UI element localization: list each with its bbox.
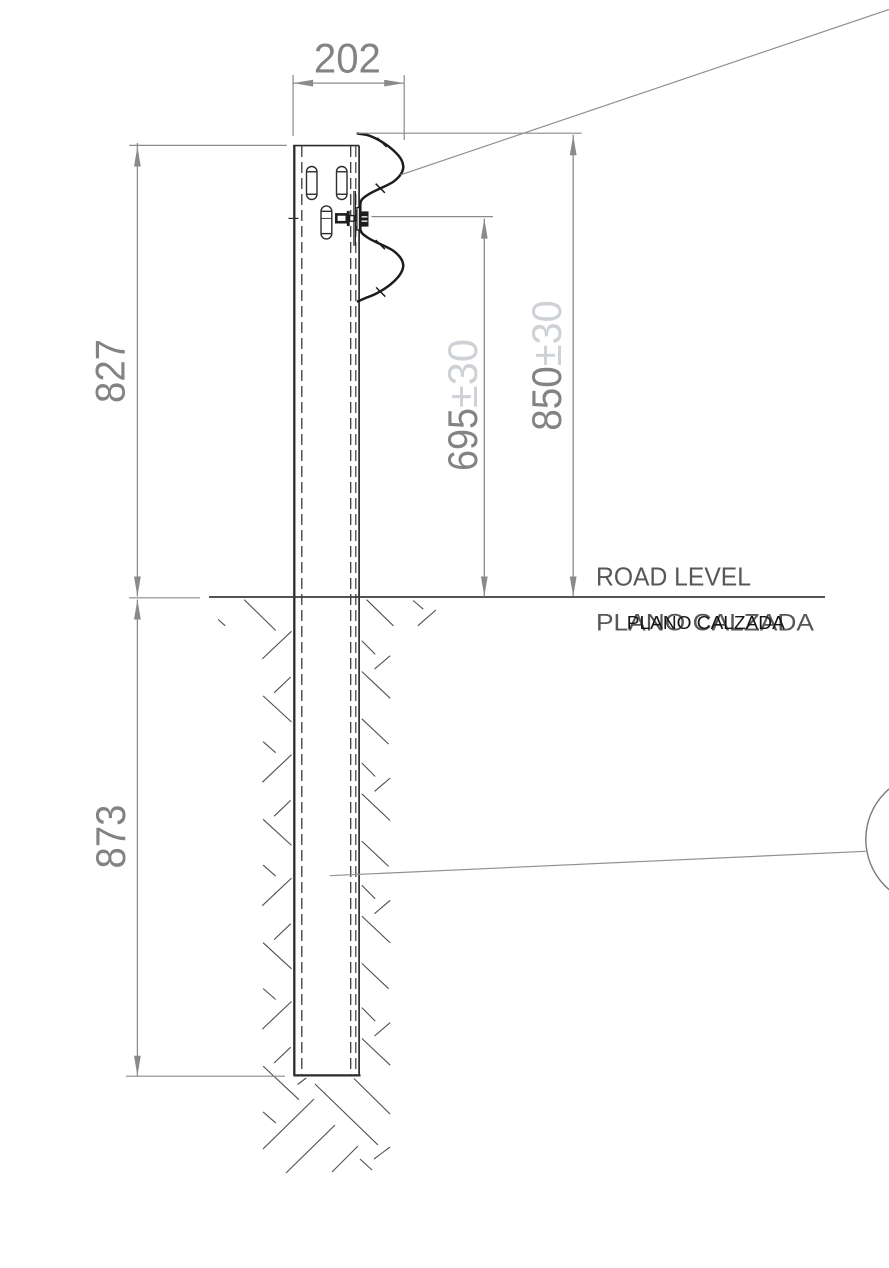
svg-text:827: 827 xyxy=(86,339,133,403)
svg-text:695±30: 695±30 xyxy=(439,339,486,471)
svg-text:850±30: 850±30 xyxy=(523,300,570,431)
svg-text:873: 873 xyxy=(87,805,134,869)
svg-text:ROAD LEVEL: ROAD LEVEL xyxy=(596,562,751,592)
svg-text:202: 202 xyxy=(314,34,381,81)
svg-text:PLANO CALZADA: PLANO CALZADA xyxy=(627,612,786,633)
